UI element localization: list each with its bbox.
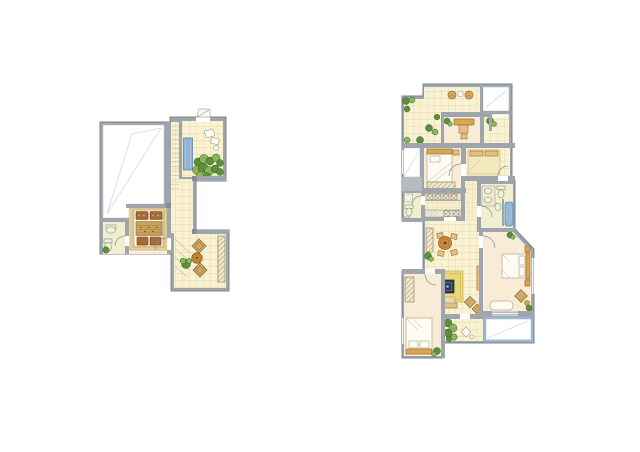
- wardrobe: [405, 277, 414, 302]
- floor-plans-image: [0, 0, 640, 452]
- nightstand: [525, 246, 530, 252]
- upper-floor-plan: [100, 109, 229, 291]
- room-light-well: [404, 148, 420, 177]
- room-east-terrace: [484, 117, 509, 143]
- room-rear-terrace: [444, 318, 483, 342]
- toilet: [497, 186, 505, 190]
- desk: [454, 119, 474, 125]
- double-bed: [134, 210, 163, 246]
- room-bedroom-a: [424, 148, 461, 189]
- round-tea-table: [192, 253, 202, 263]
- room-bathroom: [481, 184, 513, 228]
- bathtub: [505, 202, 513, 226]
- window: [401, 150, 405, 174]
- screenshot-canvas: [0, 0, 640, 452]
- window: [401, 318, 405, 344]
- room-bedroom-b: [404, 274, 441, 356]
- nightstand: [525, 280, 530, 286]
- entry-door: [196, 109, 210, 122]
- room-kitchen: [423, 193, 463, 219]
- chaise-lounge: [490, 301, 513, 310]
- single-bed: [427, 149, 452, 182]
- double-bed: [406, 318, 432, 354]
- sideboard: [426, 228, 433, 252]
- nightstand: [453, 150, 459, 155]
- room-bathroom: [103, 222, 125, 254]
- room-study: [444, 117, 480, 143]
- wardrobe: [427, 182, 455, 189]
- washing-machine: [405, 194, 413, 202]
- room-balcony: [485, 318, 532, 342]
- window: [531, 258, 535, 294]
- window: [492, 312, 518, 316]
- side-cabinet: [218, 236, 225, 282]
- plant: [103, 247, 109, 253]
- room-tea-room: [174, 233, 226, 288]
- room-tatami: [466, 148, 510, 177]
- plant: [526, 305, 532, 311]
- room-bedroom: [129, 208, 167, 254]
- lower-floor-plan: [401, 84, 535, 358]
- planter: [184, 138, 193, 170]
- desk-chair: [461, 134, 467, 139]
- room-utility: [404, 193, 421, 221]
- bidet: [495, 203, 501, 210]
